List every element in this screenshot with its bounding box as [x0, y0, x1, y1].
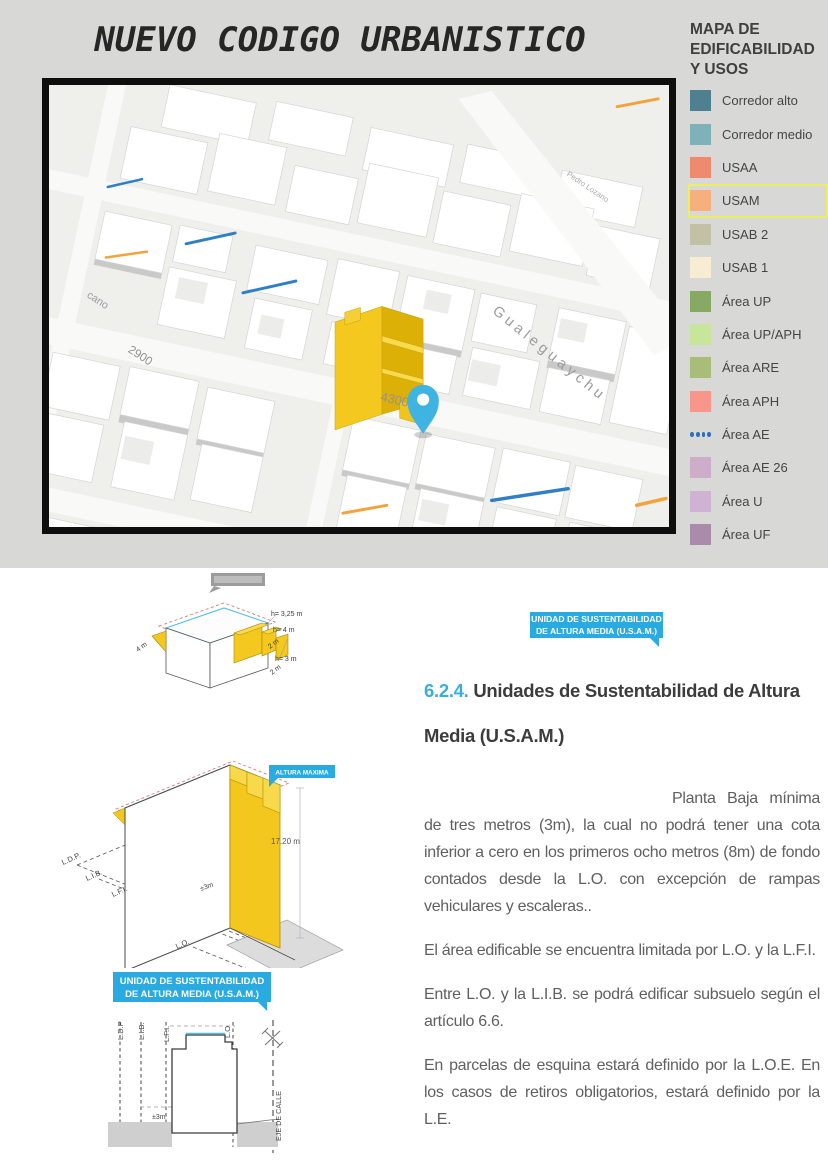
legend-swatch: [690, 124, 711, 145]
altura-maxima-tag: ALTURA MAXIMA: [269, 765, 335, 787]
legend-swatch: [690, 291, 711, 312]
legend-swatch: [690, 357, 711, 378]
map-viewport: 2900 4300 Gualeguaychu cano Pedro Lozano: [42, 78, 676, 534]
legend-item: Área U: [688, 485, 828, 518]
legend-item: USAM: [688, 184, 828, 217]
tag-tail: [650, 638, 659, 647]
usam-banner-line2: DE ALTURA MEDIA (U.S.A.M.): [113, 988, 271, 1001]
paragraph: Entre L.O. y la L.I.B. se podrá edificar…: [424, 981, 820, 1035]
dim-label: 4 m: [135, 641, 149, 654]
page: NUEVO CODIGO URBANISTICO: [0, 0, 828, 1172]
legend-item: Área AE 26: [688, 451, 828, 484]
section-number: 6.2.4.: [424, 680, 469, 701]
legend-item: USAA: [688, 151, 828, 184]
article: 6.2.4. Unidades de Sustentabilidad de Al…: [424, 668, 820, 1150]
legend-swatch: [690, 257, 711, 278]
legend-item-label: Corredor medio: [722, 127, 812, 142]
legend-item: Área UP/APH: [688, 318, 828, 351]
legend-item: USAB 2: [688, 218, 828, 251]
legend-swatch: [690, 224, 711, 245]
legend-item-label: USAA: [722, 160, 757, 175]
legend-item: Área UP: [688, 284, 828, 317]
legend-dots-icon: [690, 432, 711, 437]
legend-swatch: [690, 157, 711, 178]
legend-swatch: [690, 457, 711, 478]
legend-swatch: [690, 324, 711, 345]
diagram-usam-volume: 17.20 m ALTURA MAXIMA L.D.P. L.I.B. L.F.…: [55, 713, 355, 968]
paragraph: Planta Baja mínima de tres metros (3m), …: [424, 785, 820, 920]
paragraph: En parcelas de esquina estará definido p…: [424, 1052, 820, 1133]
legend-item-label: USAB 2: [722, 227, 768, 242]
legend-item: Área AE: [688, 418, 828, 451]
line-label: L.O: [223, 1026, 232, 1038]
dim-label: 2 m: [269, 664, 283, 677]
usam-tag-right: UNIDAD DE SUSTENTABILIDAD DE ALTURA MEDI…: [530, 612, 663, 638]
line-label: L.I.B.: [137, 1022, 146, 1040]
legend-item: USAB 1: [688, 251, 828, 284]
base-dim-label: ±3m: [152, 1114, 166, 1121]
svg-text:ALTURA MAXIMA: ALTURA MAXIMA: [275, 770, 329, 777]
dim-label: h= 3,25 m: [271, 611, 302, 618]
legend-item-label: USAB 1: [722, 260, 768, 275]
usam-tag-line2: DE ALTURA MEDIA (U.S.A.M.): [530, 626, 663, 638]
legend-swatch: [690, 90, 711, 111]
axis-label: EJE DE CALLE: [274, 1091, 283, 1141]
line-label: L.I.B.: [84, 867, 104, 882]
bottom-section: h= 3,25 m h= 4 m 2 m h= 3 m 2 m 4 m: [0, 568, 828, 1172]
legend-title: MAPA DE EDIFICABILIDAD Y USOS: [690, 20, 828, 79]
legend-item-label: Área UP/APH: [722, 327, 801, 342]
legend-item-label: USAM: [722, 193, 760, 208]
usam-banner-line1: UNIDAD DE SUSTENTABILIDAD: [113, 975, 271, 988]
section-heading-text: Unidades de Sustentabilidad de Altura Me…: [424, 680, 800, 746]
usam-banner: UNIDAD DE SUSTENTABILIDAD DE ALTURA MEDI…: [113, 972, 271, 1002]
legend-swatch: [690, 391, 711, 412]
legend-item: Corredor medio: [688, 117, 828, 150]
legend-item-label: Área ARE: [722, 360, 779, 375]
legend-item-label: Área U: [722, 494, 762, 509]
legend-item: Corredor alto: [688, 84, 828, 117]
legend-item: Área APH: [688, 385, 828, 418]
legend-item-label: Área UF: [722, 527, 770, 542]
legend-swatch: [690, 491, 711, 512]
page-title: NUEVO CODIGO URBANISTICO: [40, 20, 640, 60]
paragraph: El área edificable se encuentra limitada…: [424, 937, 820, 964]
height-dim-label: 17.20 m: [271, 837, 300, 846]
legend-item-label: Área APH: [722, 394, 779, 409]
legend-item-label: Corredor alto: [722, 93, 798, 108]
legend-swatch: [690, 190, 711, 211]
diagram-envelope-steps: h= 3,25 m h= 4 m 2 m h= 3 m 2 m 4 m: [128, 570, 323, 712]
legend-item: Área UF: [688, 518, 828, 551]
usam-tag-line1: UNIDAD DE SUSTENTABILIDAD: [530, 614, 663, 626]
legend-items: Corredor alto Corredor medio USAA USAM U…: [688, 84, 828, 551]
line-label: L.D.P: [116, 1021, 125, 1040]
dim-label: h= 4 m: [273, 627, 295, 634]
section-heading: 6.2.4. Unidades de Sustentabilidad de Al…: [424, 668, 820, 759]
dim-label: h= 3 m: [275, 656, 297, 663]
legend-item-label: Área AE: [722, 427, 770, 442]
legend-item-label: Área UP: [722, 294, 771, 309]
callout-label: [209, 573, 265, 593]
diagram-section-view: L.D.P L.I.B. L.F.I. L.O EJE DE CALLE ±3m: [82, 1008, 312, 1168]
map-3d-city: 2900 4300 Gualeguaychu cano Pedro Lozano: [49, 85, 669, 527]
legend-item-label: Área AE 26: [722, 460, 788, 475]
line-label: L.F.I.: [162, 1026, 171, 1042]
legend-swatch: [690, 524, 711, 545]
legend-item: Área ARE: [688, 351, 828, 384]
top-section: NUEVO CODIGO URBANISTICO: [0, 0, 828, 568]
